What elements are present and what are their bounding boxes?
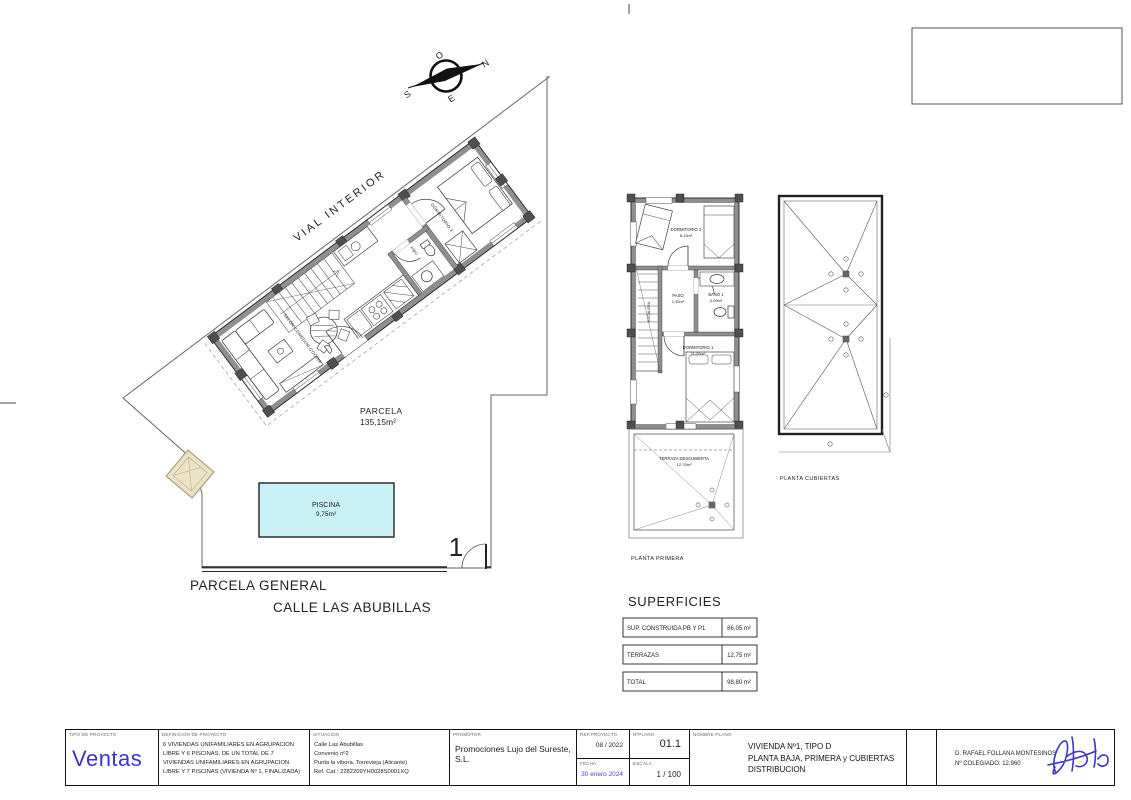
escala-value: 1 / 100 (657, 770, 681, 779)
architect-number: Nº COLEGIADO: 12.960 (955, 759, 1056, 769)
titleblock-definicion-cell: DEFINICION DE PROYECTO 6 VIVIENDAS UNIFA… (158, 730, 309, 785)
dormitorio1-label: DORMITORIO 1 (683, 345, 714, 350)
paso-area: 1,92m² (672, 299, 685, 304)
superficies-title: SUPERFICIES (628, 594, 721, 609)
nombre-plano-line: DISTRIBUCION (748, 764, 894, 776)
definicion-line: LIBRE Y 7 PISCINAS (VIVIENDA Nº 1, FINAL… (163, 768, 300, 777)
parcela-label: PARCELA (360, 406, 403, 416)
dormitorio2-area: 8,13m² (680, 233, 693, 238)
pool-label: PISCINA (312, 502, 340, 509)
plan-sheet: O N S E 1 PISCINA 9,75m² PARCELA 135,15m… (0, 0, 1131, 800)
promotor-value: Promociones Lujo del Sureste, S.L. (455, 744, 576, 764)
first-floor-plan: DORMITORIO 2 8,13m² ESCALERA PASO 1,92m²… (627, 194, 743, 429)
dormitorio1-area: 11,20m² (691, 351, 706, 356)
definicion-label: DEFINICION DE PROYECTO (162, 732, 226, 737)
definicion-line: LIBRE Y 6 PISCINAS, DE UN TOTAL DE 7 (163, 750, 300, 759)
definicion-line: VIVIENDAS UNIFAMILIARES EN AGRUPACION (163, 759, 300, 768)
ref-proyecto-label: REF.PROYECTO (580, 732, 617, 737)
roof-plan (779, 196, 890, 452)
legend-box (912, 28, 1122, 104)
compass-s: S (402, 89, 412, 101)
bano-area: 3,09m² (710, 298, 723, 303)
pool-area: 9,75m² (316, 511, 337, 518)
tipo-proyecto-label: TIPO DE PROYECTO (69, 732, 117, 737)
terraza-label: TERRAZA DESCUBIERTA (659, 456, 709, 461)
fecha-label: FECHA (580, 761, 596, 766)
definicion-line: 6 VIVIENDAS UNIFAMILIARES EN AGRUPACION (163, 741, 300, 750)
titleblock-ref-fecha-cell: REF.PROYECTO 08 / 2022 FECHA 30 enero 20… (576, 730, 629, 785)
titleblock-situacion-cell: SITUACION Calle Las Abubillas Convenio n… (309, 730, 449, 785)
superficies-row-value: 12,75 m² (727, 653, 751, 659)
escalera-label: ESCALERA (647, 301, 651, 322)
drawing-area: O N S E 1 PISCINA 9,75m² PARCELA 135,15m… (0, 0, 1131, 800)
architect-name: D. RAFAEL FOLLANA MONTESINOS (955, 749, 1056, 759)
escala-label: ESCALA (633, 761, 652, 766)
situacion-label: SITUACION (313, 732, 339, 737)
roof-drain-1 (843, 271, 849, 277)
compass-n: N (480, 58, 491, 70)
situacion-line: Calle Las Abubillas (314, 741, 409, 750)
compass-rose: O N S E (402, 49, 491, 104)
titleblock-spacer-cell (906, 730, 936, 785)
nombre-plano-line: VIVIENDA Nº1, TIPO D (748, 741, 894, 753)
compass-needle (412, 64, 482, 87)
nombre-plano-label: NOMBRE PLANO (693, 732, 732, 737)
planter-square (166, 450, 214, 498)
ref-proyecto-value: 08 / 2022 (596, 742, 623, 749)
bano-label: BAÑO 1 (708, 292, 724, 297)
paso-label: PASO (672, 293, 684, 298)
situacion-line: Ref. Cat.: 2282209YH0028S0001XQ (314, 768, 409, 777)
superficies-row-label: TERRAZAS (627, 653, 659, 659)
gate-swing-arc (462, 544, 486, 568)
title-block: TIPO DE PROYECTO Ventas DEFINICION DE PR… (65, 729, 1115, 786)
nombre-plano-line: PLANTA BAJA, PRIMERA y CUBIERTAS (748, 753, 894, 765)
street-label: CALLE LAS ABUBILLAS (273, 600, 431, 615)
street-fence (202, 544, 491, 572)
titleblock-nombre-cell: NOMBRE PLANO VIVIENDA Nº1, TIPO D PLANTA… (689, 730, 906, 785)
num-plano-value: 01.1 (660, 738, 681, 750)
gate-number: 1 (449, 532, 463, 562)
parcela-area: 135,15m² (360, 417, 396, 427)
parcela-general-label: PARCELA GENERAL (190, 578, 327, 593)
titleblock-promotor-cell: PROMOTOR Promociones Lujo del Sureste, S… (449, 730, 576, 785)
superficies-table: SUPERFICIES SUP. CONSTRUIDA PB Y P1 86,0… (623, 594, 757, 691)
situacion-line: Convenio nº2 (314, 750, 409, 759)
architect-signature (1044, 733, 1110, 783)
dormitorio2-label: DORMITORIO 2 (671, 227, 702, 232)
roof-drain-2 (843, 336, 849, 342)
terrace-drain (709, 502, 715, 508)
terraza-area: 12,75m² (677, 462, 692, 467)
titleblock-plano-escala-cell: NºPLANO 01.1 ESCALA 1 / 100 (629, 730, 689, 785)
superficies-row-label: TOTAL (627, 680, 646, 686)
superficies-row-value: 98,80 m² (727, 680, 751, 686)
promotor-label: PROMOTOR (453, 732, 481, 737)
compass-e: E (446, 93, 456, 105)
project-type-value: Ventas (72, 746, 142, 772)
titleblock-architect-cell: D. RAFAEL FOLLANA MONTESINOS Nº COLEGIAD… (936, 730, 1116, 785)
planta-cubiertas-caption: PLANTA CUBIERTAS (780, 476, 840, 482)
superficies-row-value: 86,05 m² (727, 626, 751, 632)
num-plano-label: NºPLANO (633, 732, 655, 737)
superficies-row-label: SUP. CONSTRUIDA PB Y P1 (627, 626, 706, 632)
situacion-line: Punta la vibora. Torrevieja (Alicante) (314, 759, 409, 768)
terrace-plan: TERRAZA DESCUBIERTA 12,75m² (629, 429, 743, 538)
fecha-value: 30 enero 2024 (581, 771, 623, 778)
pool: PISCINA 9,75m² (259, 483, 394, 537)
planta-primera-caption: PLANTA PRIMERA (631, 556, 684, 562)
titleblock-tipo-cell: TIPO DE PROYECTO Ventas (66, 730, 158, 785)
